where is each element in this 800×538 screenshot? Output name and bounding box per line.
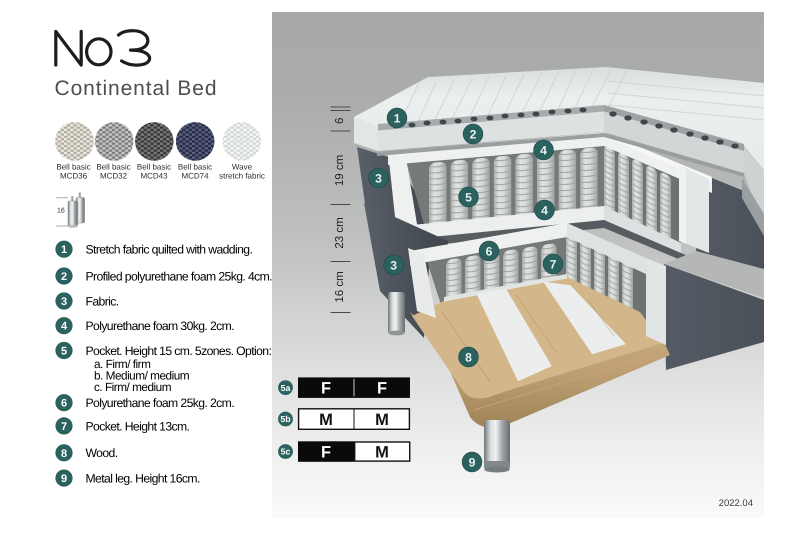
svg-text:5b: 5b: [280, 414, 291, 424]
svg-text:2022.04: 2022.04: [719, 498, 753, 509]
svg-text:7: 7: [61, 421, 67, 433]
svg-text:Stretch fabric quilted with wa: Stretch fabric quilted with wadding.: [86, 243, 253, 257]
svg-text:5a: 5a: [281, 383, 291, 393]
svg-text:Polyurethane foam 30kg. 2cm.: Polyurethane foam 30kg. 2cm.: [86, 319, 235, 333]
svg-text:Wave: Wave: [232, 163, 253, 172]
svg-text:8: 8: [61, 448, 67, 460]
svg-text:19 cm: 19 cm: [334, 155, 346, 186]
svg-text:9: 9: [469, 455, 476, 469]
svg-text:3: 3: [375, 171, 382, 185]
svg-text:Bell basic: Bell basic: [96, 163, 130, 172]
svg-text:MCD36: MCD36: [60, 172, 88, 181]
svg-text:3: 3: [390, 258, 397, 272]
svg-text:2: 2: [470, 127, 477, 141]
svg-text:stretch fabric: stretch fabric: [219, 172, 265, 181]
svg-text:1: 1: [61, 244, 67, 256]
svg-text:16 cm: 16 cm: [334, 271, 346, 302]
svg-text:Metal leg. Height 16cm.: Metal leg. Height 16cm.: [86, 472, 200, 486]
svg-text:F: F: [377, 379, 387, 397]
svg-text:Pocket. Height 13cm.: Pocket. Height 13cm.: [86, 419, 190, 433]
svg-text:Bell basic: Bell basic: [56, 163, 90, 172]
svg-text:4: 4: [540, 143, 547, 157]
svg-text:MCD43: MCD43: [140, 172, 168, 181]
svg-text:4: 4: [541, 203, 548, 217]
svg-text:4: 4: [61, 321, 68, 333]
svg-text:Pocket. Height 15 cm. 5zones.: Pocket. Height 15 cm. 5zones. Option:: [86, 344, 272, 358]
svg-text:6: 6: [486, 244, 493, 258]
svg-text:M: M: [375, 443, 389, 461]
svg-text:MCD32: MCD32: [100, 172, 128, 181]
svg-text:16: 16: [57, 208, 65, 215]
svg-text:c. Firm/ medium: c. Firm/ medium: [94, 380, 172, 394]
svg-text:2: 2: [61, 271, 67, 283]
svg-text:Profiled polyurethane foam 25k: Profiled polyurethane foam 25kg. 4cm.: [86, 269, 273, 283]
svg-text:Bell basic: Bell basic: [137, 163, 171, 172]
svg-text:9: 9: [61, 473, 67, 485]
svg-text:1: 1: [394, 111, 401, 125]
svg-text:3: 3: [61, 296, 67, 308]
svg-text:MCD74: MCD74: [181, 172, 209, 181]
svg-text:Bell basic: Bell basic: [178, 163, 212, 172]
svg-text:Fabric.: Fabric.: [86, 294, 119, 308]
svg-text:23 cm: 23 cm: [334, 217, 346, 248]
svg-text:6: 6: [334, 118, 346, 124]
svg-text:Polyurethane foam 25kg. 2cm.: Polyurethane foam 25kg. 2cm.: [86, 396, 235, 410]
svg-text:5c: 5c: [281, 447, 291, 457]
svg-text:M: M: [319, 411, 333, 429]
svg-text:F: F: [321, 443, 331, 461]
svg-text:Wood.: Wood.: [86, 446, 118, 460]
svg-text:5: 5: [61, 346, 67, 358]
svg-text:6: 6: [61, 398, 67, 410]
svg-text:Continental Bed: Continental Bed: [55, 77, 218, 100]
svg-text:8: 8: [465, 350, 472, 364]
svg-text:M: M: [375, 411, 389, 429]
svg-text:5: 5: [465, 190, 472, 204]
svg-text:F: F: [321, 379, 331, 397]
svg-text:7: 7: [550, 257, 557, 271]
